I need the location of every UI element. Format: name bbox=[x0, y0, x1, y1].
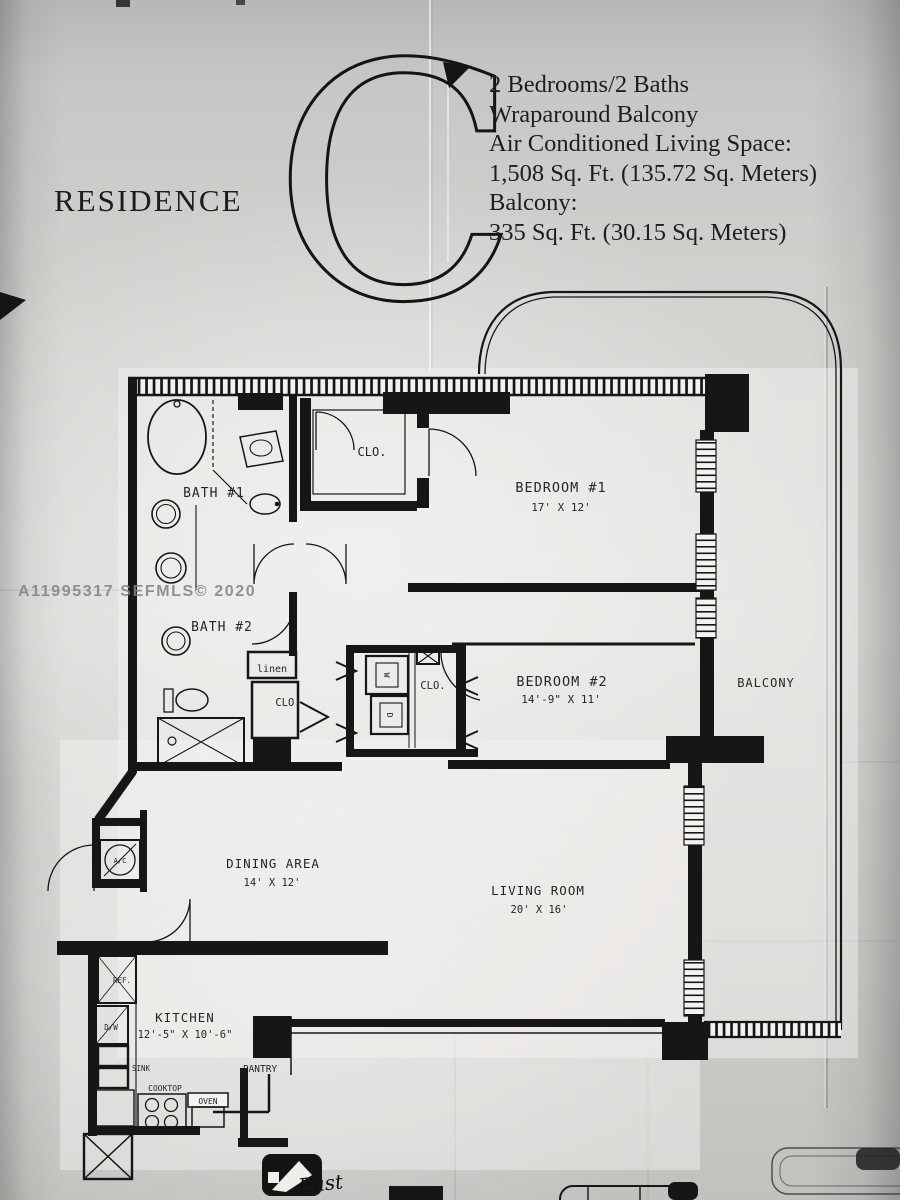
washer-label: W bbox=[382, 673, 391, 678]
floorplan-photo: C bbox=[0, 0, 900, 1200]
summary-line: Wraparound Balcony bbox=[489, 100, 817, 130]
bedroom1-label: BEDROOM #1 bbox=[515, 480, 606, 496]
summary-line: Balcony: bbox=[489, 188, 817, 218]
dishwasher-label: D/W bbox=[104, 1023, 118, 1032]
bedroom2-dims: 14'-9" X 11' bbox=[521, 693, 600, 706]
cooktop-label: COOKTOP bbox=[148, 1084, 182, 1093]
summary-line: 335 Sq. Ft. (30.15 Sq. Meters) bbox=[489, 218, 817, 248]
living-label: LIVING ROOM bbox=[491, 883, 585, 898]
living-dims: 20' X 16' bbox=[511, 904, 568, 916]
linen-label: linen bbox=[257, 664, 287, 675]
residence-title: RESIDENCE bbox=[54, 183, 243, 219]
dining-label: DINING AREA bbox=[226, 856, 320, 871]
dryer-label: D bbox=[385, 713, 394, 718]
bedroom2-label: BEDROOM #2 bbox=[516, 674, 607, 690]
compass-notch bbox=[268, 1172, 279, 1183]
kitchen-label: KITCHEN bbox=[155, 1010, 215, 1025]
east-label: East bbox=[296, 1169, 345, 1198]
summary-line: 1,508 Sq. Ft. (135.72 Sq. Meters) bbox=[489, 159, 817, 189]
summary-line: 2 Bedrooms/2 Baths bbox=[489, 70, 817, 100]
balcony-label: BALCONY bbox=[737, 676, 795, 690]
kitchen-dims: 12'-5" X 10'-6" bbox=[138, 1029, 233, 1041]
bedroom1-dims: 17' X 12' bbox=[531, 501, 591, 514]
mls-watermark: A11995317 SEFMLS© 2020 bbox=[18, 583, 256, 601]
closet-utility-label: CLO. bbox=[420, 680, 445, 692]
summary-line: Air Conditioned Living Space: bbox=[489, 129, 817, 159]
unit-summary: 2 Bedrooms/2 Baths Wraparound Balcony Ai… bbox=[489, 70, 817, 247]
refrigerator-label: REF. bbox=[113, 976, 131, 985]
bath2-label: BATH #2 bbox=[191, 620, 253, 635]
oven-label: OVEN bbox=[198, 1097, 217, 1106]
closet-hall-label: CLO. bbox=[275, 697, 300, 709]
bath1-label: BATH #1 bbox=[183, 486, 245, 501]
pantry-label: PANTRY bbox=[243, 1064, 278, 1075]
dining-dims: 14' X 12' bbox=[244, 877, 301, 889]
sink-label: SINK bbox=[132, 1064, 151, 1073]
residence-letter: C bbox=[272, 0, 521, 374]
closet-top-label: CLO. bbox=[358, 445, 387, 459]
ac-label: A/C bbox=[114, 857, 127, 865]
